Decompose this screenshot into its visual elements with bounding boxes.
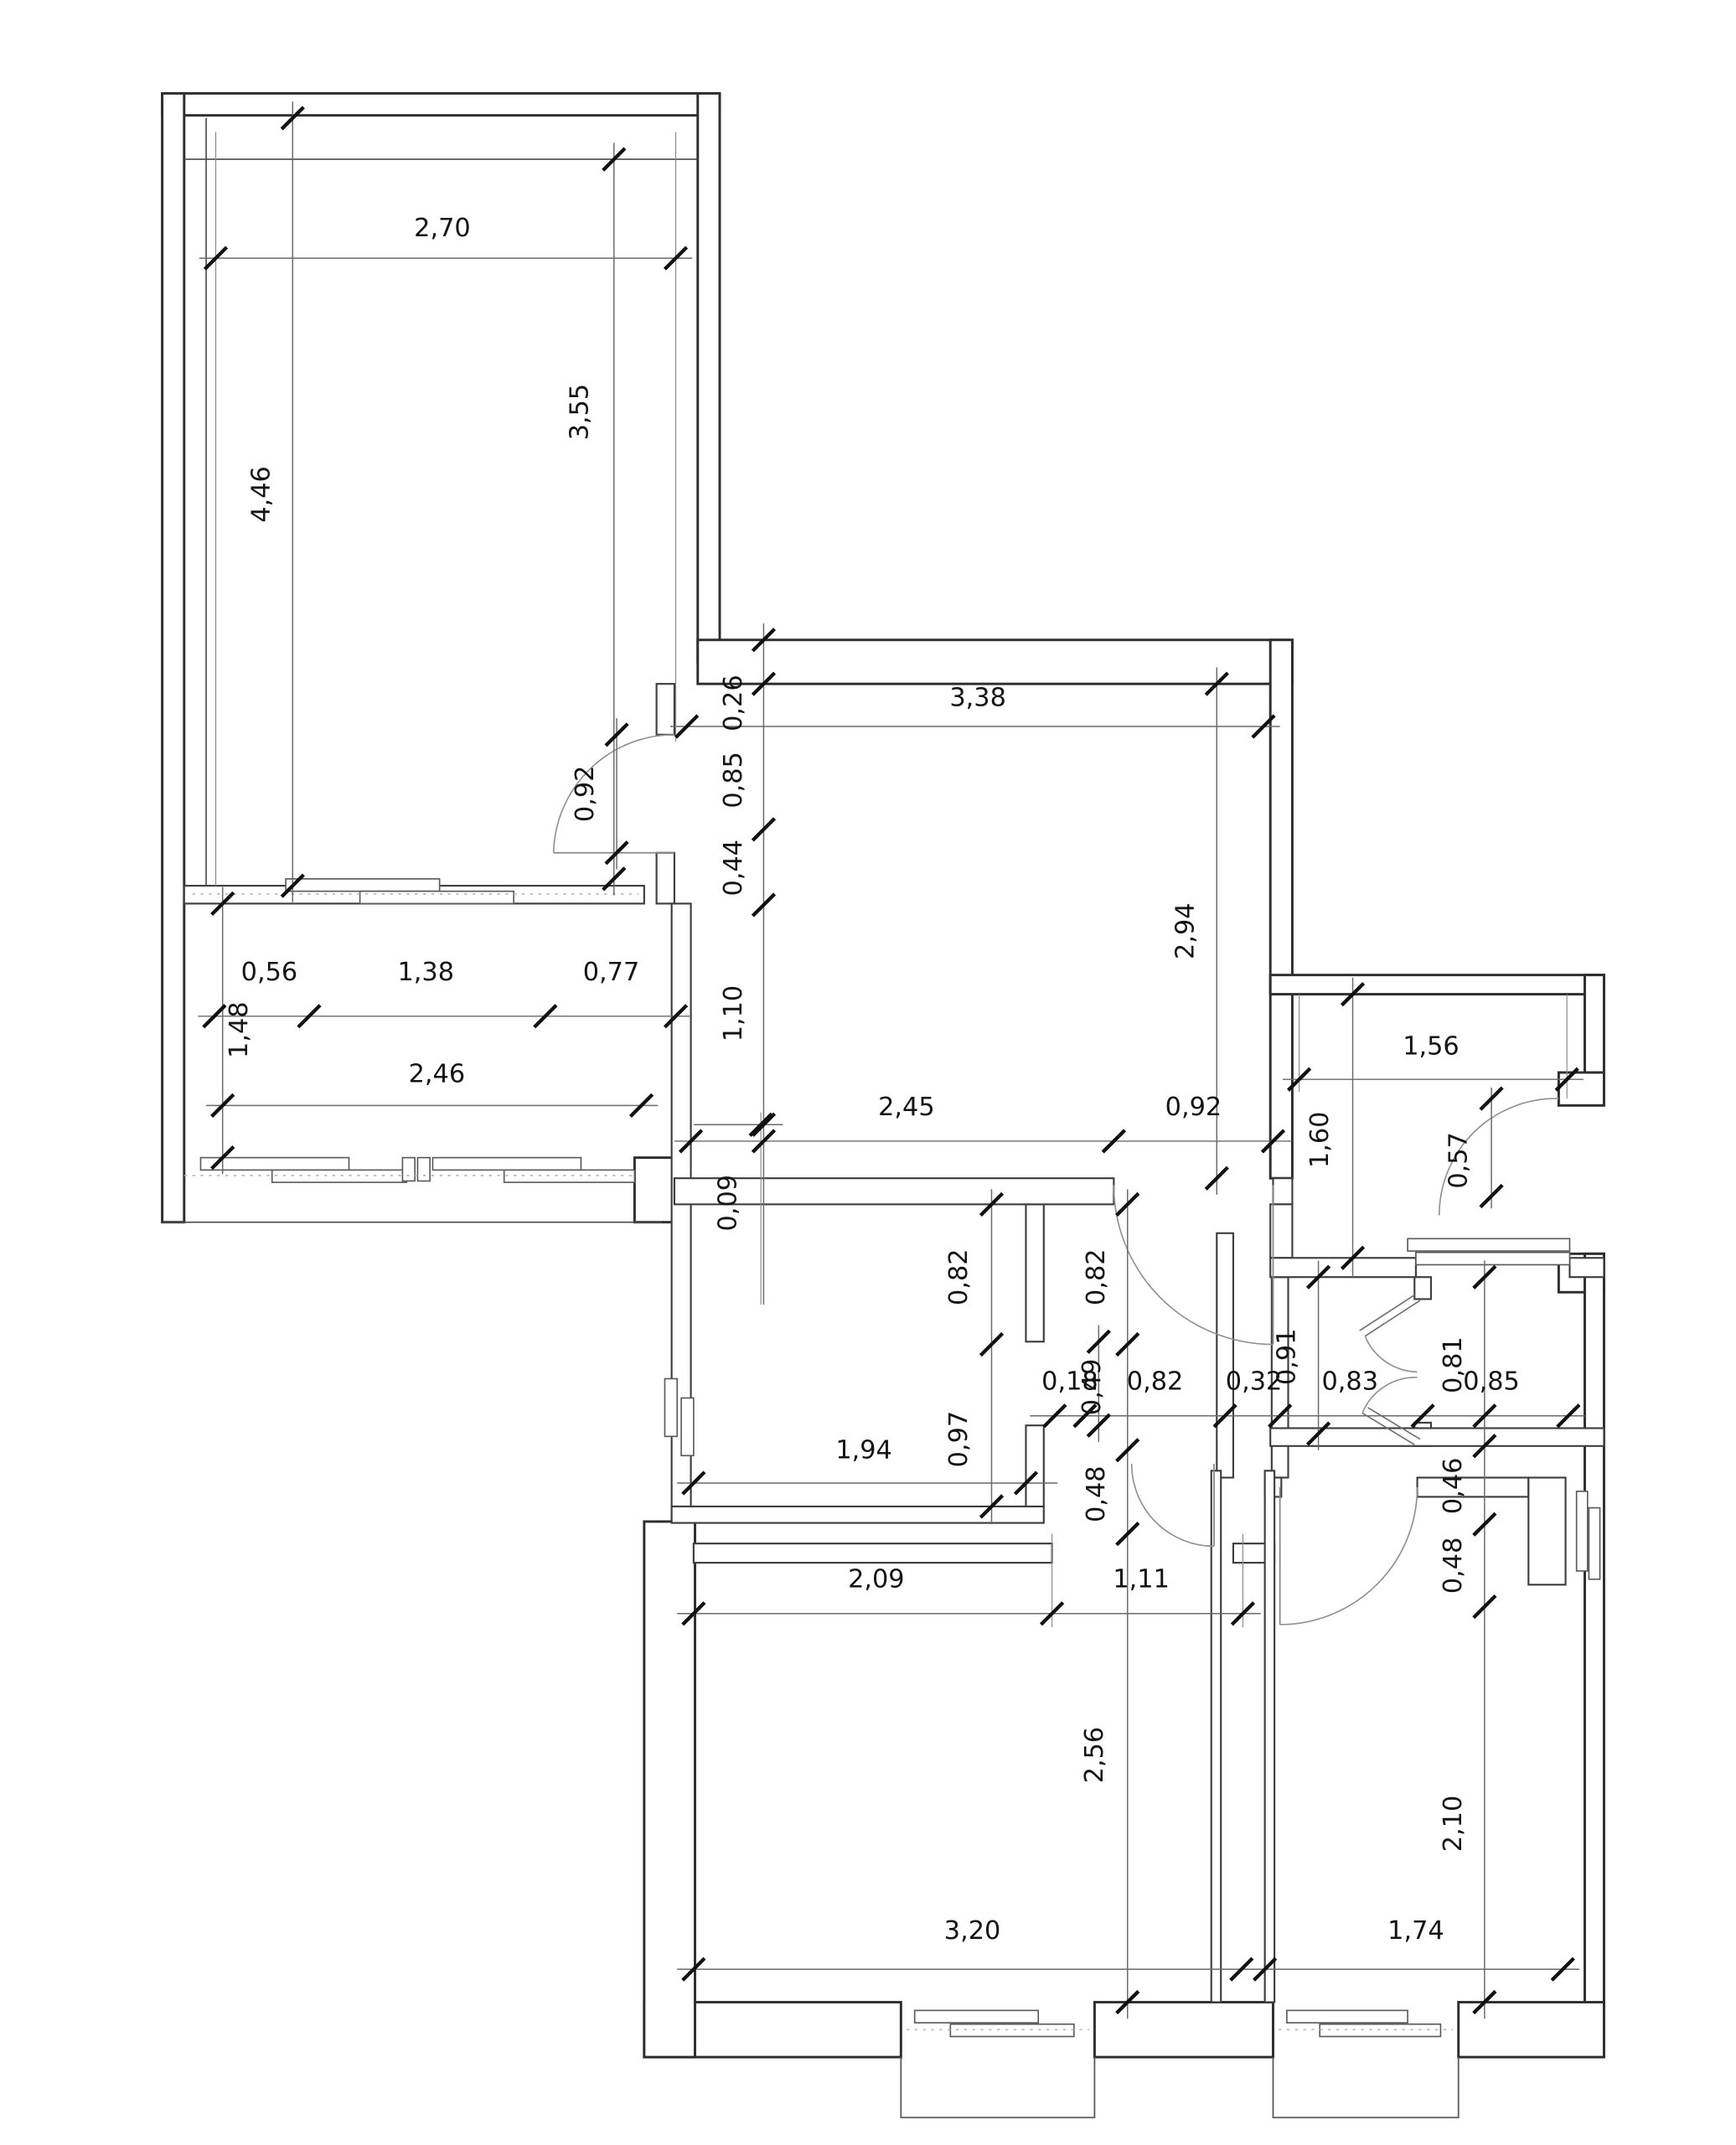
dim-label: 1,60 [1305, 1112, 1335, 1169]
dim-label: 0,44 [719, 840, 748, 897]
dim-label: 2,09 [848, 1565, 904, 1595]
dim-label: 1,74 [1387, 1916, 1444, 1946]
dim-label: 0,97 [944, 1411, 974, 1468]
wall-corridor-west-lower [1026, 1425, 1043, 1507]
dim-label: 3,20 [944, 1916, 1001, 1946]
dim-label: 0,85 [719, 752, 748, 809]
floor-plan-drawing: 2,70 4,46 3,55 0,26 3,38 0,92 0,85 0,44 … [0, 0, 1736, 2145]
window-bedroom1-a [915, 2010, 1039, 2023]
dim-label: 4,46 [246, 466, 276, 523]
balcony-mullion-b [417, 1158, 430, 1181]
dim-label: 1,94 [835, 1436, 892, 1465]
wall-entry-top [1270, 975, 1604, 995]
dim-label: 2,45 [878, 1093, 935, 1122]
wall-separator-left [1212, 1470, 1221, 2002]
dimension-lines [198, 101, 1584, 2018]
window-pantry-a [664, 1378, 677, 1436]
wall-bath-divider-top [1414, 1277, 1431, 1299]
wall-top-living [163, 93, 720, 115]
wall-vestibule-south-right [1569, 1258, 1604, 1277]
wall-entry-step-upper [1558, 1072, 1604, 1105]
dim-label: 3,38 [949, 683, 1006, 712]
wall-right-upper [1585, 975, 1604, 1072]
dim-label: 0,46 [1439, 1458, 1468, 1515]
dim-label: 1,10 [719, 985, 748, 1042]
window-vestibule-b [1416, 1253, 1570, 1265]
dim-label: 0,48 [1082, 1465, 1111, 1522]
dim-label: 1,48 [225, 1001, 254, 1058]
shaft-block [1528, 1477, 1565, 1584]
dim-label: 0,57 [1444, 1132, 1474, 1189]
wall-living-right [698, 93, 720, 662]
dim-label: 0,85 [1463, 1367, 1520, 1397]
door-leaf-wc-b [1360, 1295, 1415, 1331]
dim-label: 2,56 [1080, 1727, 1109, 1784]
dim-label: 0,49 [1077, 1359, 1107, 1416]
dim-label: 0,77 [583, 958, 640, 987]
wall-mid-top [698, 640, 1293, 684]
wall-kitchen-east [1270, 640, 1292, 1178]
dim-label: 0,56 [241, 958, 298, 987]
dim-label: 0,32 [1226, 1367, 1283, 1397]
wall-right-lower [1585, 1253, 1604, 2004]
window-living-b [360, 892, 514, 904]
window-balcony2-a [432, 1158, 581, 1171]
window-right-b [1589, 1508, 1599, 1579]
dim-label: 0,92 [1165, 1093, 1222, 1122]
bay-bedroom2 [1273, 2057, 1458, 2117]
door-arc-corridor-small [1132, 1464, 1214, 1546]
wall-balcony-connector [634, 1158, 673, 1222]
dim-label: 2,46 [409, 1059, 466, 1088]
window-living-a [286, 879, 440, 892]
dim-label: 1,11 [1113, 1565, 1170, 1595]
door-leaf-wc-a [1365, 1300, 1420, 1336]
dim-label: 0,48 [1439, 1538, 1468, 1595]
dim-label: 0,82 [944, 1248, 974, 1305]
door-arc-hall-corridor [1113, 1185, 1273, 1344]
dim-label: 1,56 [1403, 1032, 1460, 1062]
bay-bedroom1 [901, 2057, 1094, 2117]
wall-duct-west [1217, 1233, 1233, 1478]
dim-label: 2,10 [1439, 1796, 1468, 1853]
window-vestibule-a [1408, 1238, 1569, 1251]
wall-separator-right [1265, 1470, 1274, 2002]
wall-bedroom2-top [1418, 1477, 1529, 1496]
wall-left [163, 93, 184, 1222]
dim-label: 0,82 [1127, 1367, 1184, 1397]
dim-label: 0,26 [719, 675, 748, 731]
wall-kitchen-south-stub [1273, 1178, 1292, 1204]
dim-label: 2,70 [414, 214, 471, 243]
window-pantry-b [681, 1398, 694, 1455]
wall-bottom-seg3 [1459, 2003, 1604, 2058]
window-right-a [1577, 1491, 1588, 1571]
dim-label: 1,38 [398, 958, 454, 987]
wall-corridor-west-upper [1026, 1204, 1043, 1341]
dim-label: 0,83 [1322, 1367, 1379, 1397]
balcony-mullion-a [402, 1158, 415, 1181]
dim-label: 2,94 [1170, 902, 1200, 959]
floor-plan-page: 2,70 4,46 3,55 0,26 3,38 0,92 0,85 0,44 … [0, 0, 1736, 2145]
window-bedroom2-a [1287, 2010, 1408, 2023]
dim-label: 3,55 [566, 384, 595, 440]
dim-label: 0,09 [714, 1175, 743, 1232]
outer-walls [163, 93, 1604, 2057]
wall-door092-jamb-bottom [657, 853, 674, 904]
dim-label: 0,82 [1082, 1248, 1111, 1305]
dim-label: 0,92 [571, 766, 600, 823]
door-arc-bedroom2 [1280, 1487, 1418, 1625]
wall-bedroom1-top [694, 1543, 1052, 1563]
